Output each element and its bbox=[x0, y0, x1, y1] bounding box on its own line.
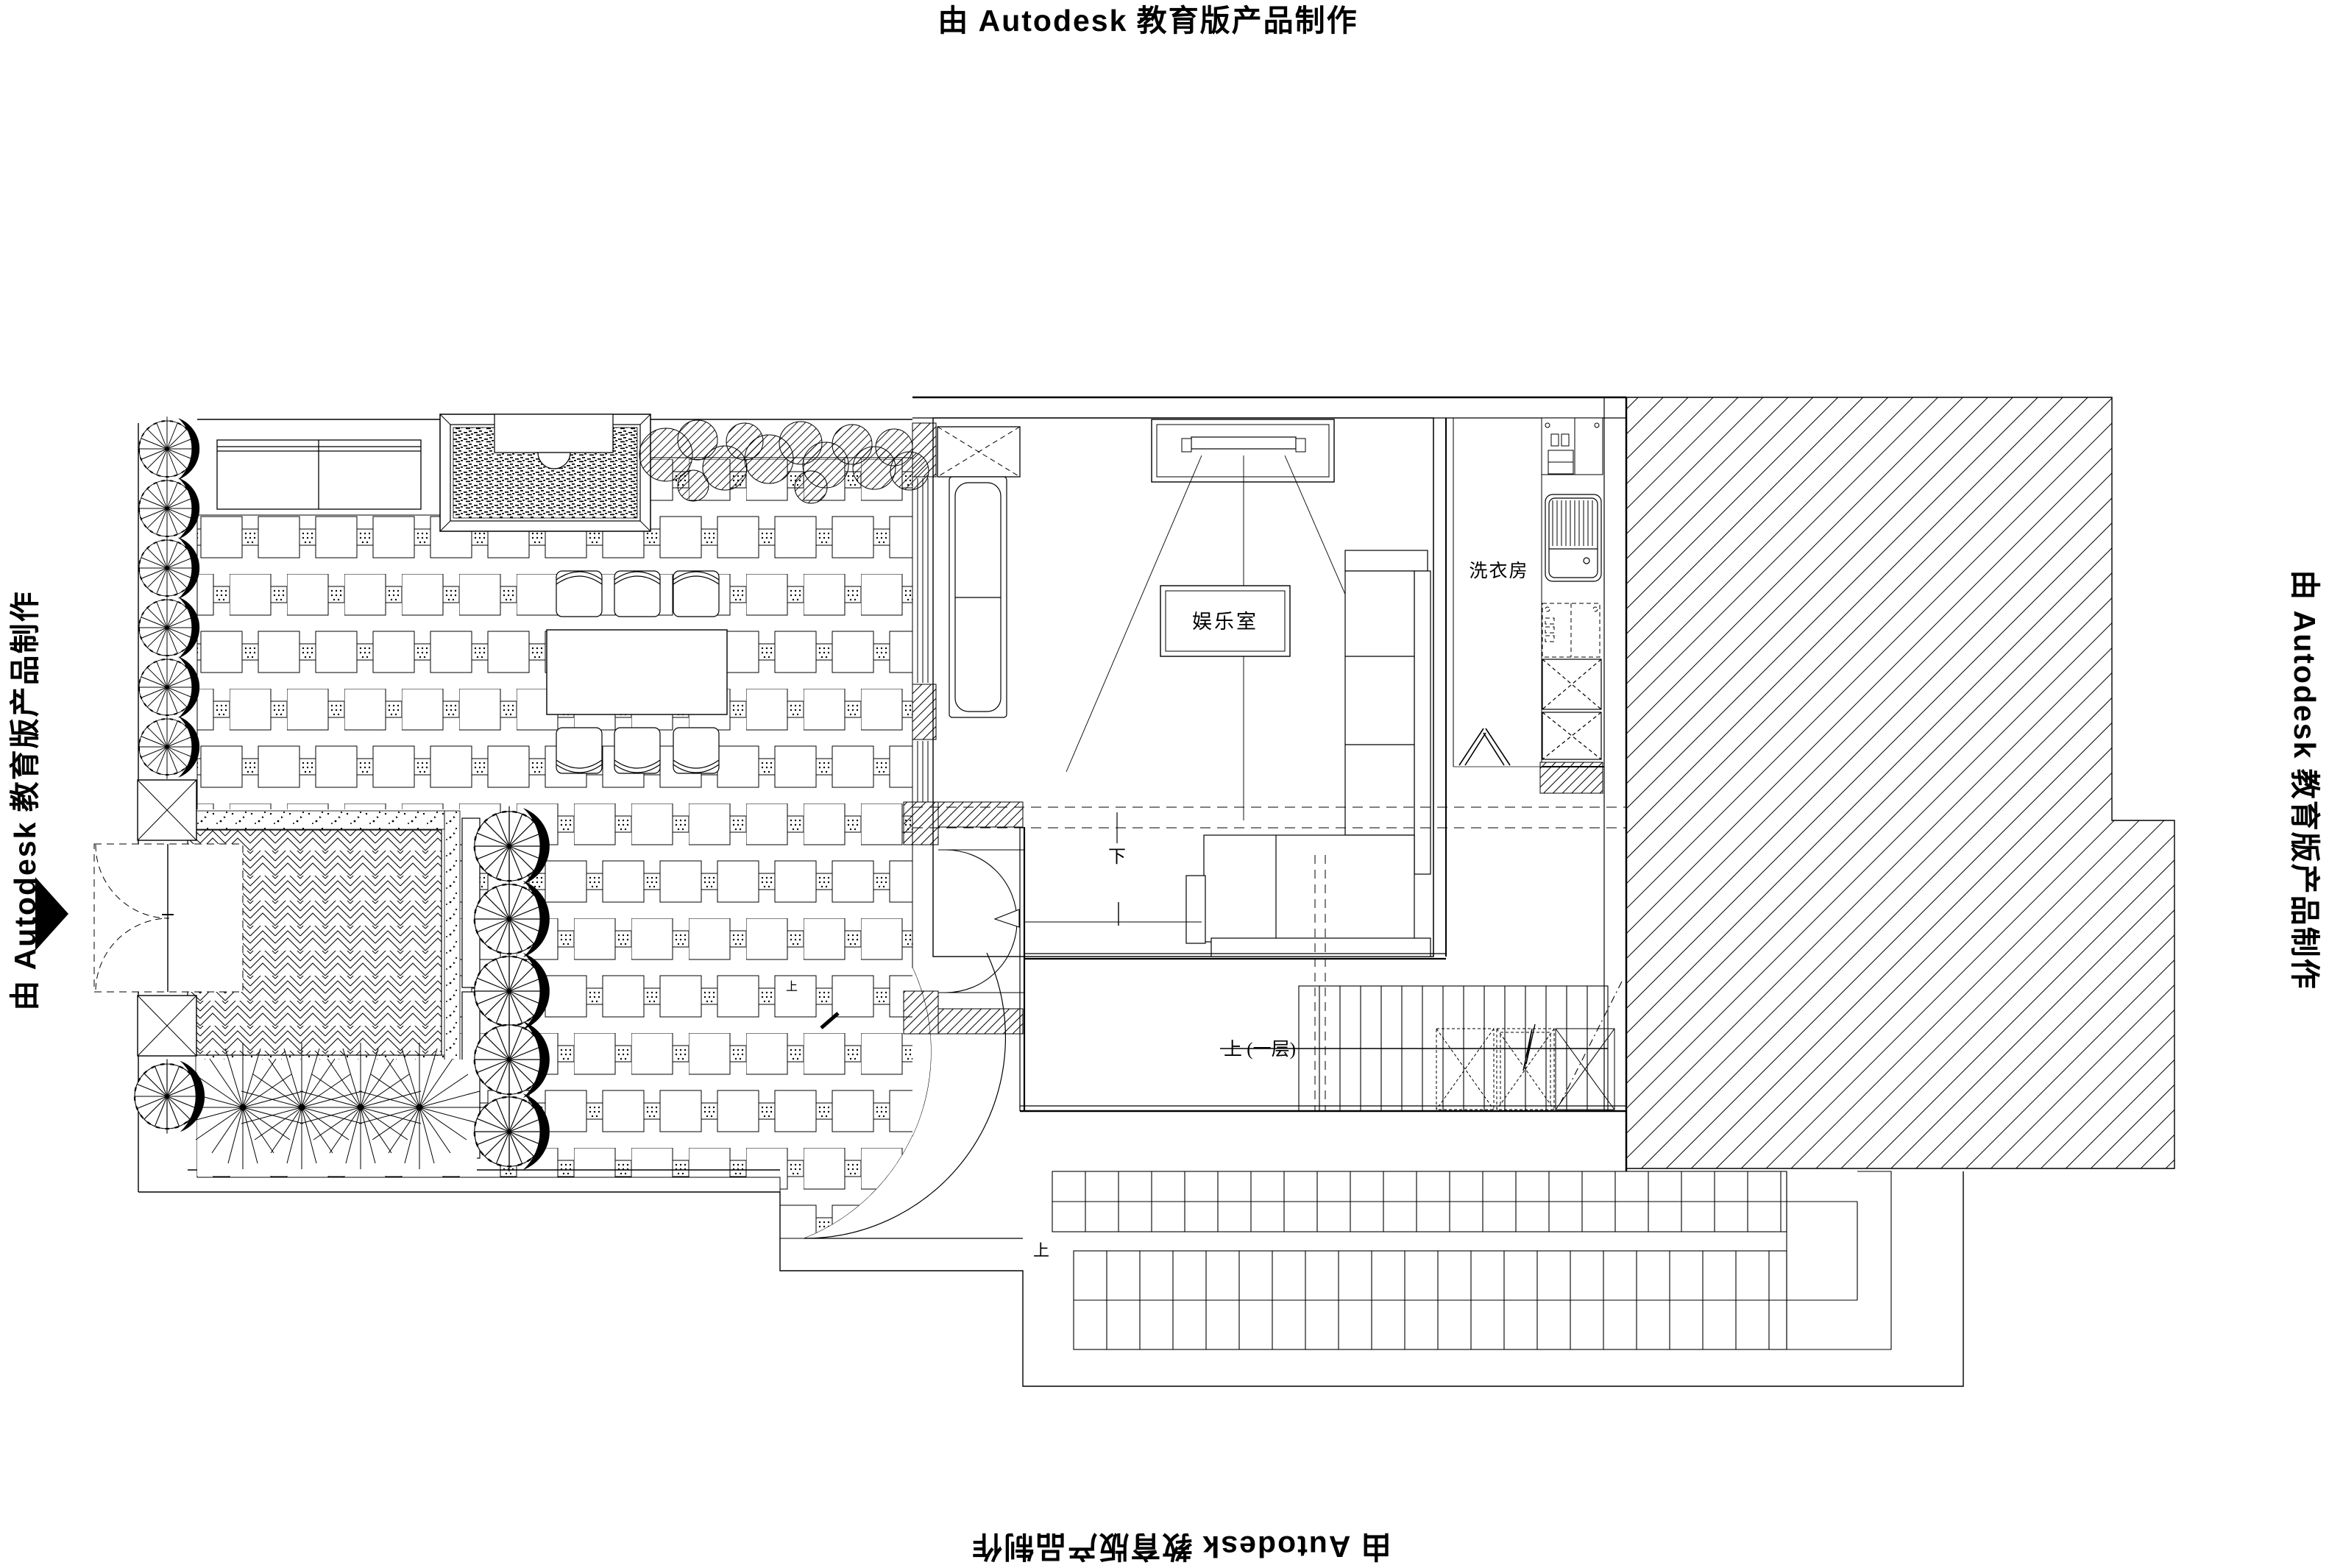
terrace-steps: 上 bbox=[1033, 1171, 1891, 1349]
garden-bench bbox=[217, 440, 421, 509]
terrace-steps-up-label: 上 bbox=[1033, 1241, 1049, 1260]
laundry-room: 洗衣房 bbox=[1453, 418, 1604, 793]
entertainment-room: 娱乐室 bbox=[912, 418, 1446, 959]
watermark-prefix: 由 bbox=[937, 4, 969, 38]
tv-screen bbox=[1191, 437, 1296, 449]
watermark-prefix: 由 bbox=[1360, 1530, 1392, 1564]
drying-rack-icon bbox=[1459, 728, 1510, 765]
laundry-room-label: 洗衣房 bbox=[1469, 561, 1528, 581]
pond bbox=[440, 414, 651, 531]
roof-hatch-area bbox=[1626, 397, 2174, 1168]
pond-bridge bbox=[494, 414, 613, 453]
floor-plan: 上 bbox=[0, 0, 2329, 1568]
wall-hatch-block bbox=[1540, 762, 1603, 793]
watermark-bottom: 由 Autodesk 教育版产品制作 bbox=[971, 1528, 1391, 1568]
tree-column-middle bbox=[475, 806, 550, 1172]
laundry-counter bbox=[1542, 418, 1603, 475]
watermark-top: 由 Autodesk 教育版产品制作 bbox=[937, 0, 1358, 40]
building: 娱乐室 bbox=[904, 397, 1626, 1171]
vent-box bbox=[937, 427, 1020, 477]
entry-arrow-icon bbox=[22, 868, 110, 986]
watermark-brand: Autodesk bbox=[2288, 611, 2322, 760]
washer-icon bbox=[1545, 494, 1601, 581]
grass-band bbox=[177, 1043, 486, 1176]
watermark-suffix: 教育版产品制作 bbox=[971, 1530, 1192, 1564]
dining-table bbox=[547, 630, 727, 714]
watermark-suffix: 教育版产品制作 bbox=[8, 590, 42, 812]
dining-set bbox=[547, 571, 727, 773]
upper-cabinet bbox=[1542, 603, 1600, 657]
double-door-swing bbox=[946, 850, 1019, 993]
stair-up-label: 上 (一层) bbox=[1224, 1039, 1296, 1060]
shaft-boxes bbox=[1542, 659, 1601, 759]
chaise-bench bbox=[949, 477, 1007, 717]
watermark-suffix: 教育版产品制作 bbox=[2288, 769, 2322, 990]
entrance-porch bbox=[904, 802, 1024, 1034]
watermark-brand: Autodesk bbox=[1202, 1530, 1351, 1564]
watermark-prefix: 由 bbox=[2288, 570, 2322, 601]
entertainment-room-label: 娱乐室 bbox=[1192, 611, 1258, 633]
window-left bbox=[912, 478, 928, 802]
watermark-suffix: 教育版产品制作 bbox=[1137, 4, 1358, 38]
stair-down-label: 下 bbox=[1108, 848, 1126, 867]
garden-steps-up-label: 上 bbox=[786, 980, 798, 993]
watermark-right: 由 Autodesk 教育版产品制作 bbox=[2286, 570, 2329, 990]
cad-sheet: 上 bbox=[0, 0, 2329, 1568]
wall-hatch-block bbox=[912, 423, 936, 477]
wall-hatch-block bbox=[912, 684, 936, 739]
watermark-brand: Autodesk bbox=[979, 4, 1128, 38]
